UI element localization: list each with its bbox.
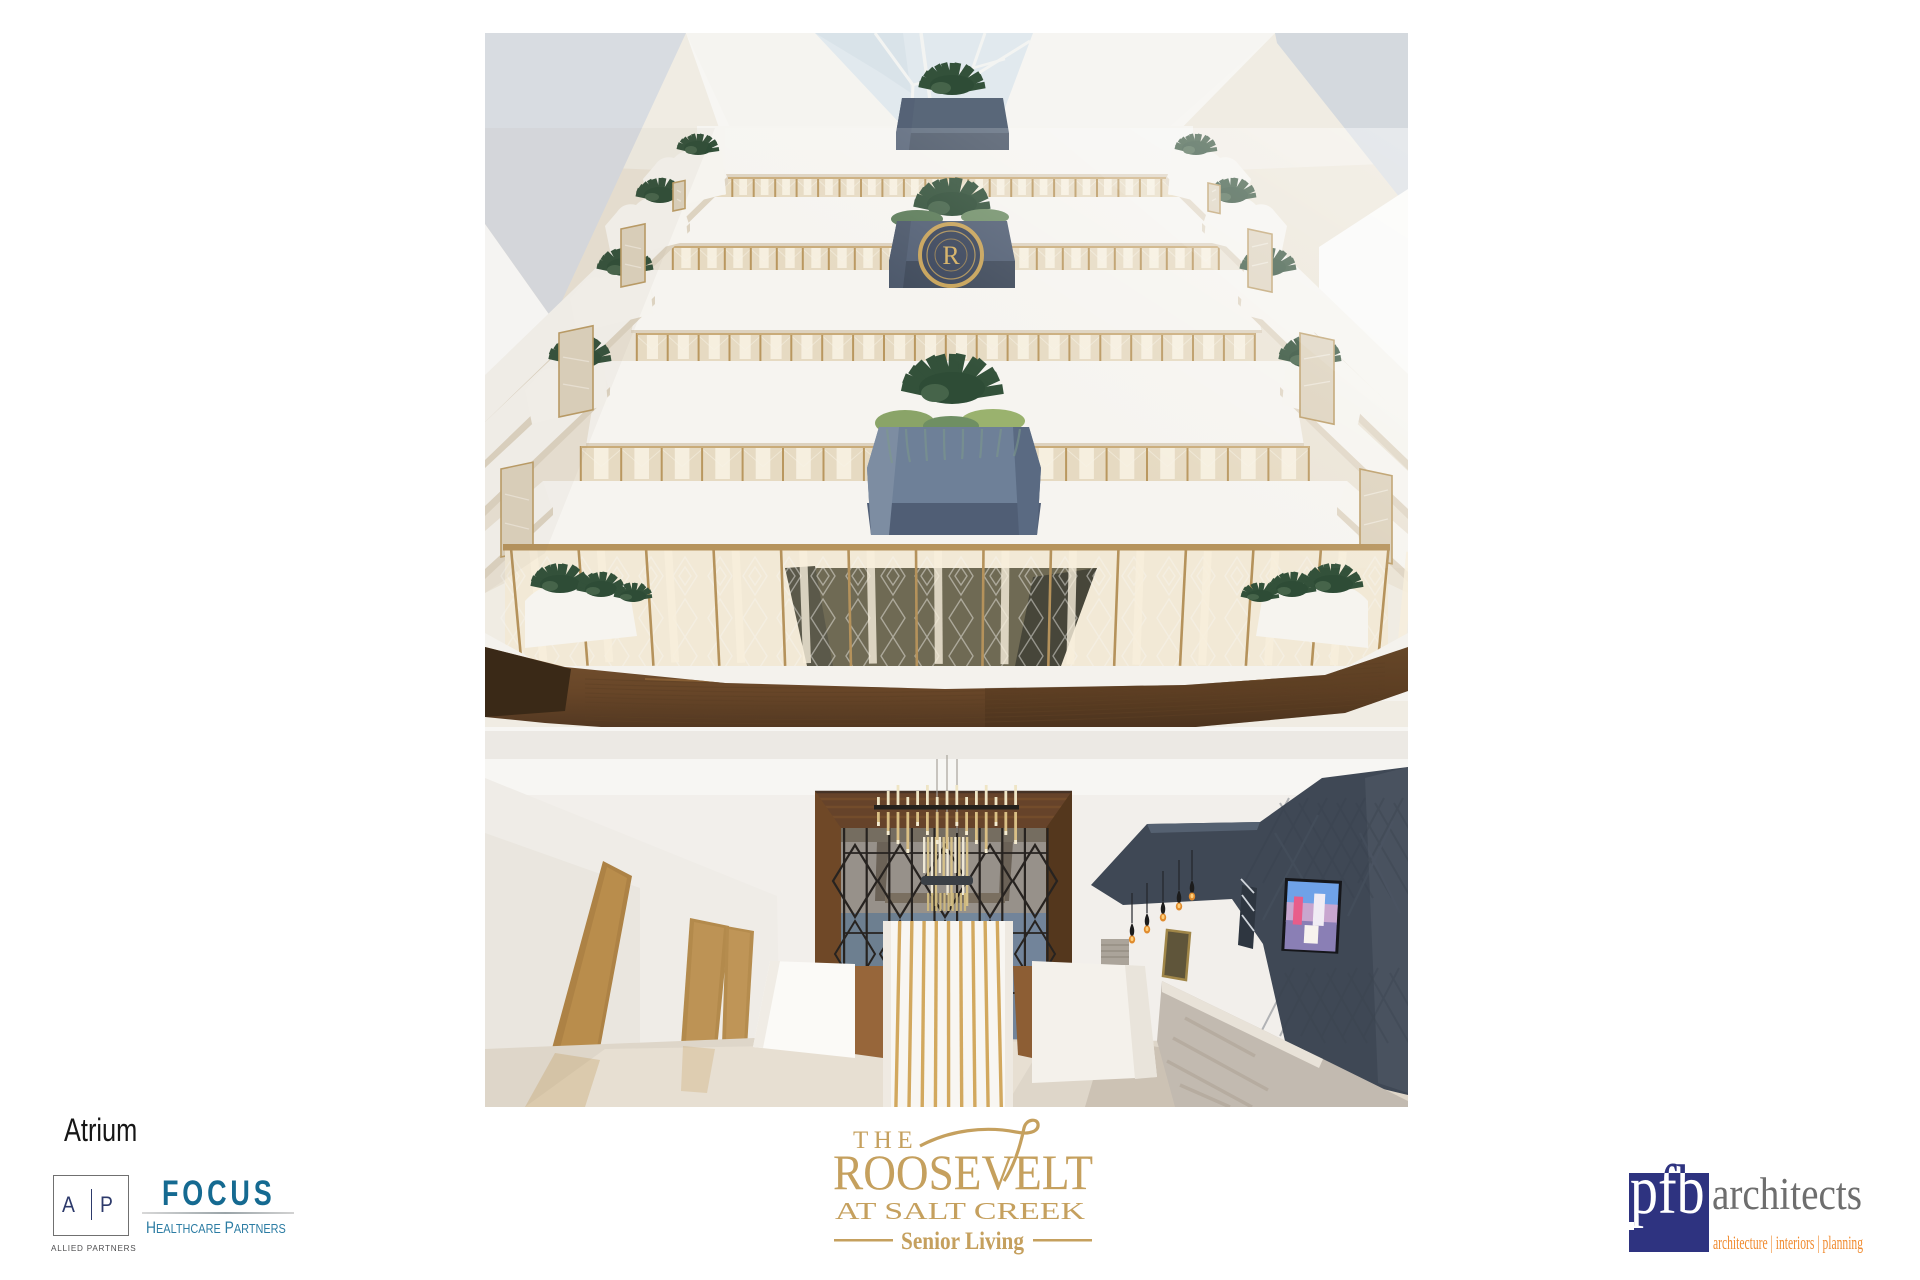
svg-text:architects: architects xyxy=(1712,1169,1862,1219)
svg-text:AT SALT CREEK: AT SALT CREEK xyxy=(835,1199,1086,1225)
svg-text:ROOSEVELT: ROOSEVELT xyxy=(833,1144,1093,1200)
svg-text:Senior Living: Senior Living xyxy=(901,1228,1024,1255)
svg-text:architecture | interiors | pla: architecture | interiors | planning xyxy=(1713,1233,1863,1254)
